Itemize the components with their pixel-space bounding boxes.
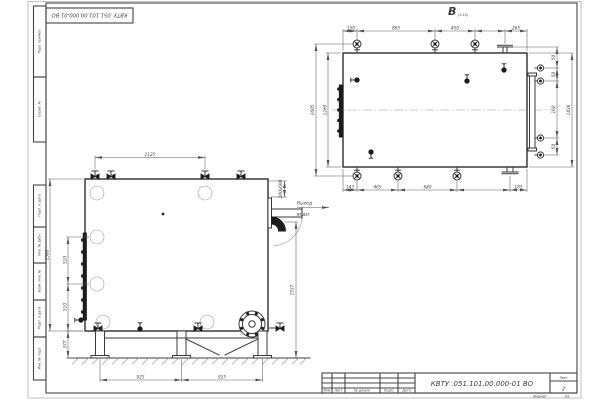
valve-icon (453, 167, 461, 180)
valve-icon (353, 40, 361, 53)
sheet-border (28, 2, 581, 399)
elbow (272, 217, 286, 231)
stamp-sprav-no: Справ. № (38, 100, 42, 117)
col-izm: Изм (324, 389, 331, 393)
col-podp: Подп. (384, 389, 394, 393)
outlet-size-label: 200х600 (278, 179, 283, 198)
valve-icon (471, 40, 479, 53)
format-value: А3 (564, 395, 569, 399)
ground-line (68, 358, 310, 365)
valve-icon (276, 323, 284, 331)
dim-label: 1500 (45, 249, 50, 260)
valve-icon (107, 171, 115, 179)
top-view: В (1:10) (310, 5, 574, 192)
globe-valve-icon (502, 64, 507, 72)
format-label: Формат (533, 395, 546, 399)
title-block: Изм Лист № докум. Подп. Дата КВТУ .051.1… (322, 373, 577, 399)
outlet-label-line2: воды (297, 213, 310, 218)
col-list: Лист (333, 389, 342, 393)
water-outlet: 200х600 Выход воды (268, 179, 329, 246)
globe-valve-icon (351, 78, 359, 83)
dim-label: 450 (451, 26, 459, 31)
dim-label: 50 (551, 55, 556, 61)
valve-icon (431, 40, 439, 53)
valve-icon (94, 323, 102, 331)
outlet-label-line1: Выход (297, 201, 312, 207)
dim-label: 465 (374, 184, 382, 189)
valve-icon (194, 323, 202, 331)
dim-label: 143 (346, 184, 354, 189)
dim-label: 510 (63, 303, 68, 311)
front-right-dim: 1537 (285, 222, 298, 358)
stamp-inv-dubl: Инв. № дубл. (38, 233, 42, 256)
left-stamp-column: Перв. примен. Справ. № Подп. и дата Инв.… (34, 6, 47, 380)
dim-label: 150 (347, 26, 355, 31)
dim-label: 265 (512, 26, 520, 31)
globe-valve-icon (465, 75, 470, 83)
dim-label: 1125 (145, 152, 156, 157)
view-label: В (448, 5, 456, 18)
front-left-dims: 1500 510 510 377 (45, 179, 90, 358)
stamp-podp-data-2: Подп. и дата (38, 307, 42, 329)
col-doc: № докум. (353, 389, 370, 393)
dim-label: 160 (551, 105, 556, 113)
drawing-code: КВТУ .051.101.00.000-01 ВО (431, 380, 534, 388)
drain-valve-icon (75, 318, 83, 323)
dim-label: 925 (137, 374, 145, 379)
nozzle (535, 65, 544, 71)
right-manifold (528, 65, 544, 158)
nozzle (535, 78, 544, 84)
dim-label: 1260 (323, 104, 328, 115)
valve-icon (394, 167, 402, 180)
dim-label: 640 (424, 184, 432, 189)
dim-label: 1438 (566, 104, 571, 115)
front-top-dim: 1125 (95, 152, 205, 169)
tank-body-front (85, 179, 268, 331)
left-flange-strip-front (75, 233, 87, 322)
left-flange-strip (338, 85, 343, 137)
globe-valve-icon (369, 150, 374, 158)
dim-label: 1605 (310, 104, 315, 115)
top-left-code-box: КВТУ .051.101.00.000-01 ВО (46, 8, 133, 23)
dim-label: 50 (551, 144, 556, 150)
sheet-number: 2 (562, 387, 565, 393)
valve-icon (237, 171, 245, 179)
nozzle (535, 152, 544, 158)
valve-icon (201, 171, 209, 179)
dim-label: 185 (515, 184, 523, 189)
stamp-podp-data-1: Подп. и дата (38, 194, 42, 216)
bottom-flange (502, 167, 518, 174)
sheet-label: Лист (558, 376, 567, 380)
dim-label: 865 (392, 26, 400, 31)
nozzle (535, 135, 544, 141)
stamp-perv-primen: Перв. примен. (38, 29, 42, 54)
globe-valve-icon (138, 323, 143, 331)
dim-label: 925 (218, 374, 226, 379)
col-data: Дата (401, 389, 411, 393)
stamp-inv-podl: Инв. № подл. (38, 347, 42, 370)
view-scale: (1:10) (458, 13, 468, 17)
stamp-vzam-inv: Взам. инв. № (38, 269, 42, 292)
left-dim-chain: 1605 1260 (310, 44, 353, 176)
top-flange (498, 45, 513, 53)
valve-icon (91, 171, 99, 179)
valve-icon (353, 167, 361, 180)
hidden-nozzle-circles (90, 186, 214, 329)
code-rotated: КВТУ .051.101.00.000-01 ВО (52, 12, 128, 18)
front-view: 200х600 Выход воды (45, 152, 330, 382)
dim-label: 510 (63, 256, 68, 264)
bottom-dim-chain: 143 465 640 185 (343, 169, 527, 192)
dim-label: 50 (551, 72, 556, 78)
dim-label: 1537 (290, 284, 295, 295)
right-dim-chain: 50 50 160 50 1438 (513, 47, 574, 167)
engineering-drawing-sheet: Перв. примен. Справ. № Подп. и дата Инв.… (0, 0, 600, 400)
dim-label: 377 (63, 340, 68, 348)
